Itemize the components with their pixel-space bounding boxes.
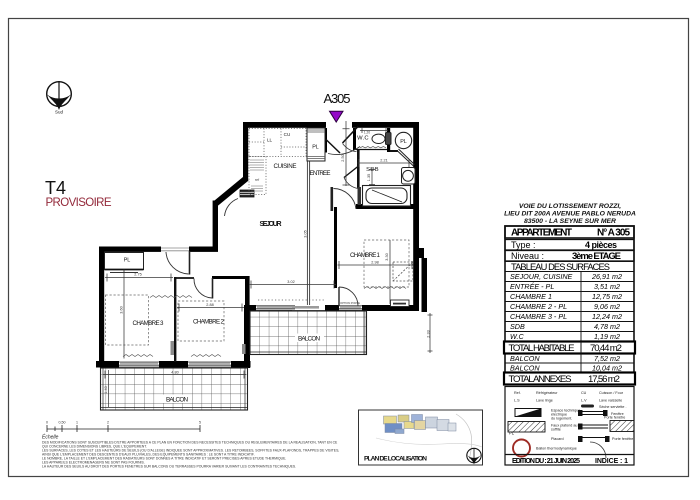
- svg-text:1.40: 1.40: [104, 386, 108, 393]
- svg-text:BALCON: BALCON: [510, 364, 540, 373]
- svg-text:T4: T4: [45, 178, 66, 198]
- svg-text:PL: PL: [509, 431, 515, 436]
- svg-text:3ème ETAGE: 3ème ETAGE: [572, 251, 621, 262]
- svg-text:9,06 m2: 9,06 m2: [594, 302, 620, 311]
- svg-text:ENTREE: ENTREE: [310, 170, 331, 177]
- svg-text:CHAMBRE 1: CHAMBRE 1: [350, 252, 381, 259]
- svg-text:Porte fenêtre: Porte fenêtre: [604, 416, 625, 420]
- svg-text:2.50: 2.50: [341, 154, 345, 161]
- svg-text:CU: CU: [581, 391, 587, 395]
- svg-text:Lave vaisselle: Lave vaisselle: [599, 399, 622, 403]
- svg-text:SEJOUR: SEJOUR: [260, 221, 282, 228]
- svg-text:1,19 m2: 1,19 m2: [594, 332, 620, 341]
- svg-text:2: 2: [107, 421, 109, 425]
- svg-text:ref: ref: [255, 178, 259, 182]
- svg-text:12,75 m2: 12,75 m2: [592, 292, 622, 301]
- svg-text:SEJOUR, CUISINE: SEJOUR, CUISINE: [510, 272, 573, 281]
- svg-text:2.21: 2.21: [380, 159, 387, 163]
- svg-text:83500 - LA SEYNE SUR MER: 83500 - LA SEYNE SUR MER: [524, 218, 616, 225]
- svg-text:Sud: Sud: [55, 110, 64, 115]
- svg-text:1: 1: [76, 421, 78, 425]
- svg-text:A305: A305: [324, 91, 351, 106]
- svg-text:soffite: soffite: [551, 428, 561, 432]
- svg-text:ENTRÉE - PL: ENTRÉE - PL: [510, 282, 554, 291]
- svg-text:TABLEAU DES SURFACES: TABLEAU DES SURFACES: [511, 262, 610, 272]
- svg-text:Niveau :: Niveau :: [511, 251, 544, 261]
- svg-text:BALCON: BALCON: [298, 336, 320, 343]
- svg-text:CUISINE: CUISINE: [274, 163, 297, 170]
- svg-text:Ref.: Ref.: [514, 391, 521, 395]
- svg-text:3.60: 3.60: [120, 306, 124, 313]
- svg-text:BALCON: BALCON: [510, 354, 540, 363]
- svg-text:17,56 m2: 17,56 m2: [588, 374, 620, 385]
- svg-text:SDB: SDB: [366, 167, 379, 173]
- svg-text:12,24 m2: 12,24 m2: [592, 312, 622, 321]
- svg-text:4,78 m2: 4,78 m2: [594, 322, 620, 331]
- svg-text:Lave linge: Lave linge: [536, 399, 553, 403]
- svg-text:PL: PL: [312, 145, 319, 151]
- svg-text:N° A 305: N° A 305: [597, 228, 630, 239]
- svg-text:CHAMBRE 3 - PL: CHAMBRE 3 - PL: [510, 312, 567, 321]
- svg-text:7,52 m2: 7,52 m2: [594, 354, 620, 363]
- svg-text:Placard: Placard: [551, 437, 564, 441]
- svg-text:LL: LL: [267, 138, 273, 143]
- svg-text:LA HAUTEUR DES SEUILS AU DROIT: LA HAUTEUR DES SEUILS AU DROIT DES PORTE…: [42, 465, 296, 469]
- svg-text:PROVISOIRE: PROVISOIRE: [46, 197, 112, 209]
- svg-text:0,50: 0,50: [59, 421, 66, 425]
- svg-text:CHAMBRE 2: CHAMBRE 2: [193, 319, 225, 326]
- svg-text:PLAN DE LOCALISATION: PLAN DE LOCALISATION: [364, 456, 427, 463]
- svg-text:3,51 m2: 3,51 m2: [594, 282, 620, 291]
- svg-text:INDICE : 1: INDICE : 1: [595, 458, 628, 465]
- svg-text:5: 5: [199, 421, 201, 425]
- svg-text:W.C: W.C: [357, 135, 369, 141]
- svg-text:3.05: 3.05: [304, 230, 308, 237]
- svg-text:0: 0: [46, 421, 48, 425]
- svg-text:Porte fenêtre: Porte fenêtre: [612, 437, 633, 441]
- svg-text:2.33: 2.33: [427, 330, 431, 337]
- svg-text:PL: PL: [124, 258, 131, 264]
- svg-text:2.98: 2.98: [371, 261, 378, 265]
- svg-text:2.88: 2.88: [206, 303, 213, 307]
- svg-text:CHAMBRE 1: CHAMBRE 1: [510, 292, 552, 301]
- svg-text:Échelle: Échelle: [42, 434, 59, 441]
- svg-text:OPTION PORTE: OPTION PORTE: [340, 301, 360, 305]
- svg-text:4.80: 4.80: [171, 371, 178, 375]
- svg-text:du logement.: du logement.: [551, 417, 572, 421]
- svg-text:26,91 m2: 26,91 m2: [591, 272, 622, 281]
- svg-text:TOTAL ANNEXES: TOTAL ANNEXES: [509, 374, 572, 385]
- svg-text:LIEU DIT 200A AVENUE PABLO NER: LIEU DIT 200A AVENUE PABLO NERUDA: [504, 211, 636, 218]
- svg-text:EDITION DU : 21 JUIN 2025: EDITION DU : 21 JUIN 2025: [512, 458, 580, 465]
- svg-text:10,04 m2: 10,04 m2: [592, 364, 622, 373]
- svg-text:SDB: SDB: [510, 322, 525, 331]
- svg-text:CU: CU: [284, 132, 291, 137]
- svg-text:L.S: L.S: [514, 399, 520, 403]
- svg-text:1.20: 1.20: [364, 130, 370, 134]
- svg-text:4 pièces: 4 pièces: [585, 240, 617, 250]
- svg-text:70,44 m2: 70,44 m2: [590, 343, 622, 354]
- svg-text:1.35: 1.35: [367, 174, 371, 181]
- svg-text:VOIE DU LOTISSEMENT ROZZI,: VOIE DU LOTISSEMENT ROZZI,: [519, 203, 621, 210]
- svg-text:W.C: W.C: [510, 332, 525, 341]
- svg-text:PL: PL: [400, 139, 407, 145]
- svg-text:3.30: 3.30: [385, 253, 389, 260]
- svg-text:Sèche serviette .: Sèche serviette .: [599, 405, 626, 409]
- svg-text:TOTAL HABITABLE: TOTAL HABITABLE: [509, 343, 575, 354]
- svg-text:Type :: Type :: [511, 240, 536, 250]
- svg-text:Réfrigérateur: Réfrigérateur: [536, 391, 558, 395]
- svg-text:Ballon thermodynamique: Ballon thermodynamique: [536, 447, 577, 451]
- svg-text:CHAMBRE 2 - PL: CHAMBRE 2 - PL: [510, 302, 567, 311]
- svg-text:BALCON: BALCON: [166, 397, 188, 404]
- svg-text:APPARTEMENT: APPARTEMENT: [511, 228, 572, 239]
- svg-text:3.02: 3.02: [287, 280, 294, 284]
- svg-text:L.V: L.V: [581, 399, 587, 403]
- svg-text:Cuisson / Four: Cuisson / Four: [599, 391, 624, 395]
- svg-text:2.75: 2.75: [134, 273, 141, 277]
